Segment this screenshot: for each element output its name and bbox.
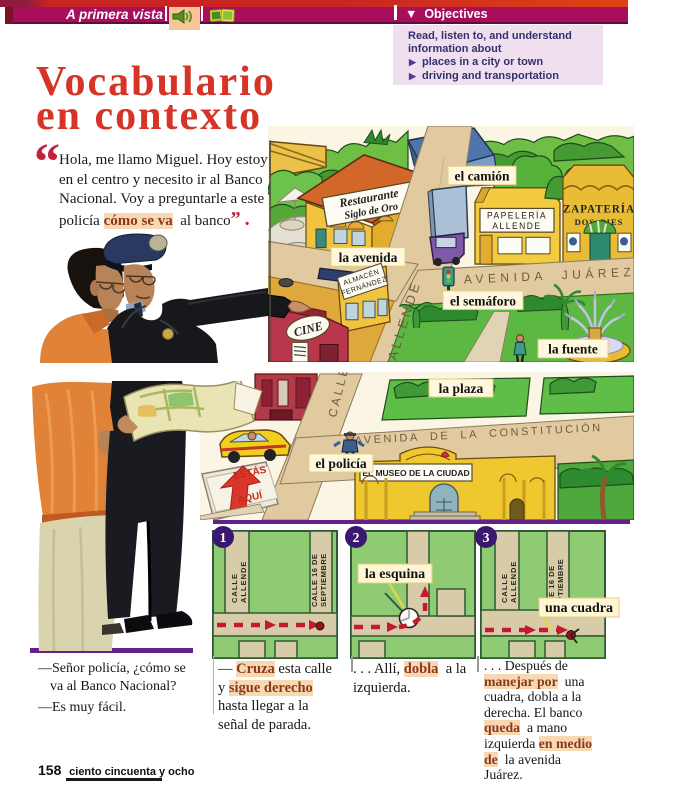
- svg-text:el semáforo: el semáforo: [450, 293, 516, 308]
- svg-text:2: 2: [353, 531, 360, 546]
- svg-text:la avenida: la avenida: [339, 250, 398, 265]
- svg-text:el camión: el camión: [454, 168, 509, 183]
- svg-text:PAPELERÍA: PAPELERÍA: [487, 211, 547, 221]
- svg-text:la esquina: la esquina: [365, 567, 425, 582]
- svg-text:la plaza: la plaza: [439, 381, 484, 396]
- svg-text:una cuadra: una cuadra: [545, 601, 613, 616]
- svg-text:ALLENDE: ALLENDE: [492, 221, 541, 231]
- svg-text:CALLE 16 DE: CALLE 16 DE: [310, 554, 319, 607]
- svg-text:EL MUSEO DE LA CIUDAD: EL MUSEO DE LA CIUDAD: [362, 468, 469, 478]
- svg-text:ZAPATERÍA: ZAPATERÍA: [563, 203, 634, 215]
- svg-text:SEPTIEMBRE: SEPTIEMBRE: [319, 553, 328, 607]
- svg-text:el policía: el policía: [315, 456, 367, 471]
- svg-text:CALLE: CALLE: [500, 573, 509, 603]
- svg-text:3: 3: [483, 531, 490, 546]
- svg-text:ALLENDE: ALLENDE: [509, 561, 518, 603]
- svg-text:la fuente: la fuente: [548, 342, 598, 357]
